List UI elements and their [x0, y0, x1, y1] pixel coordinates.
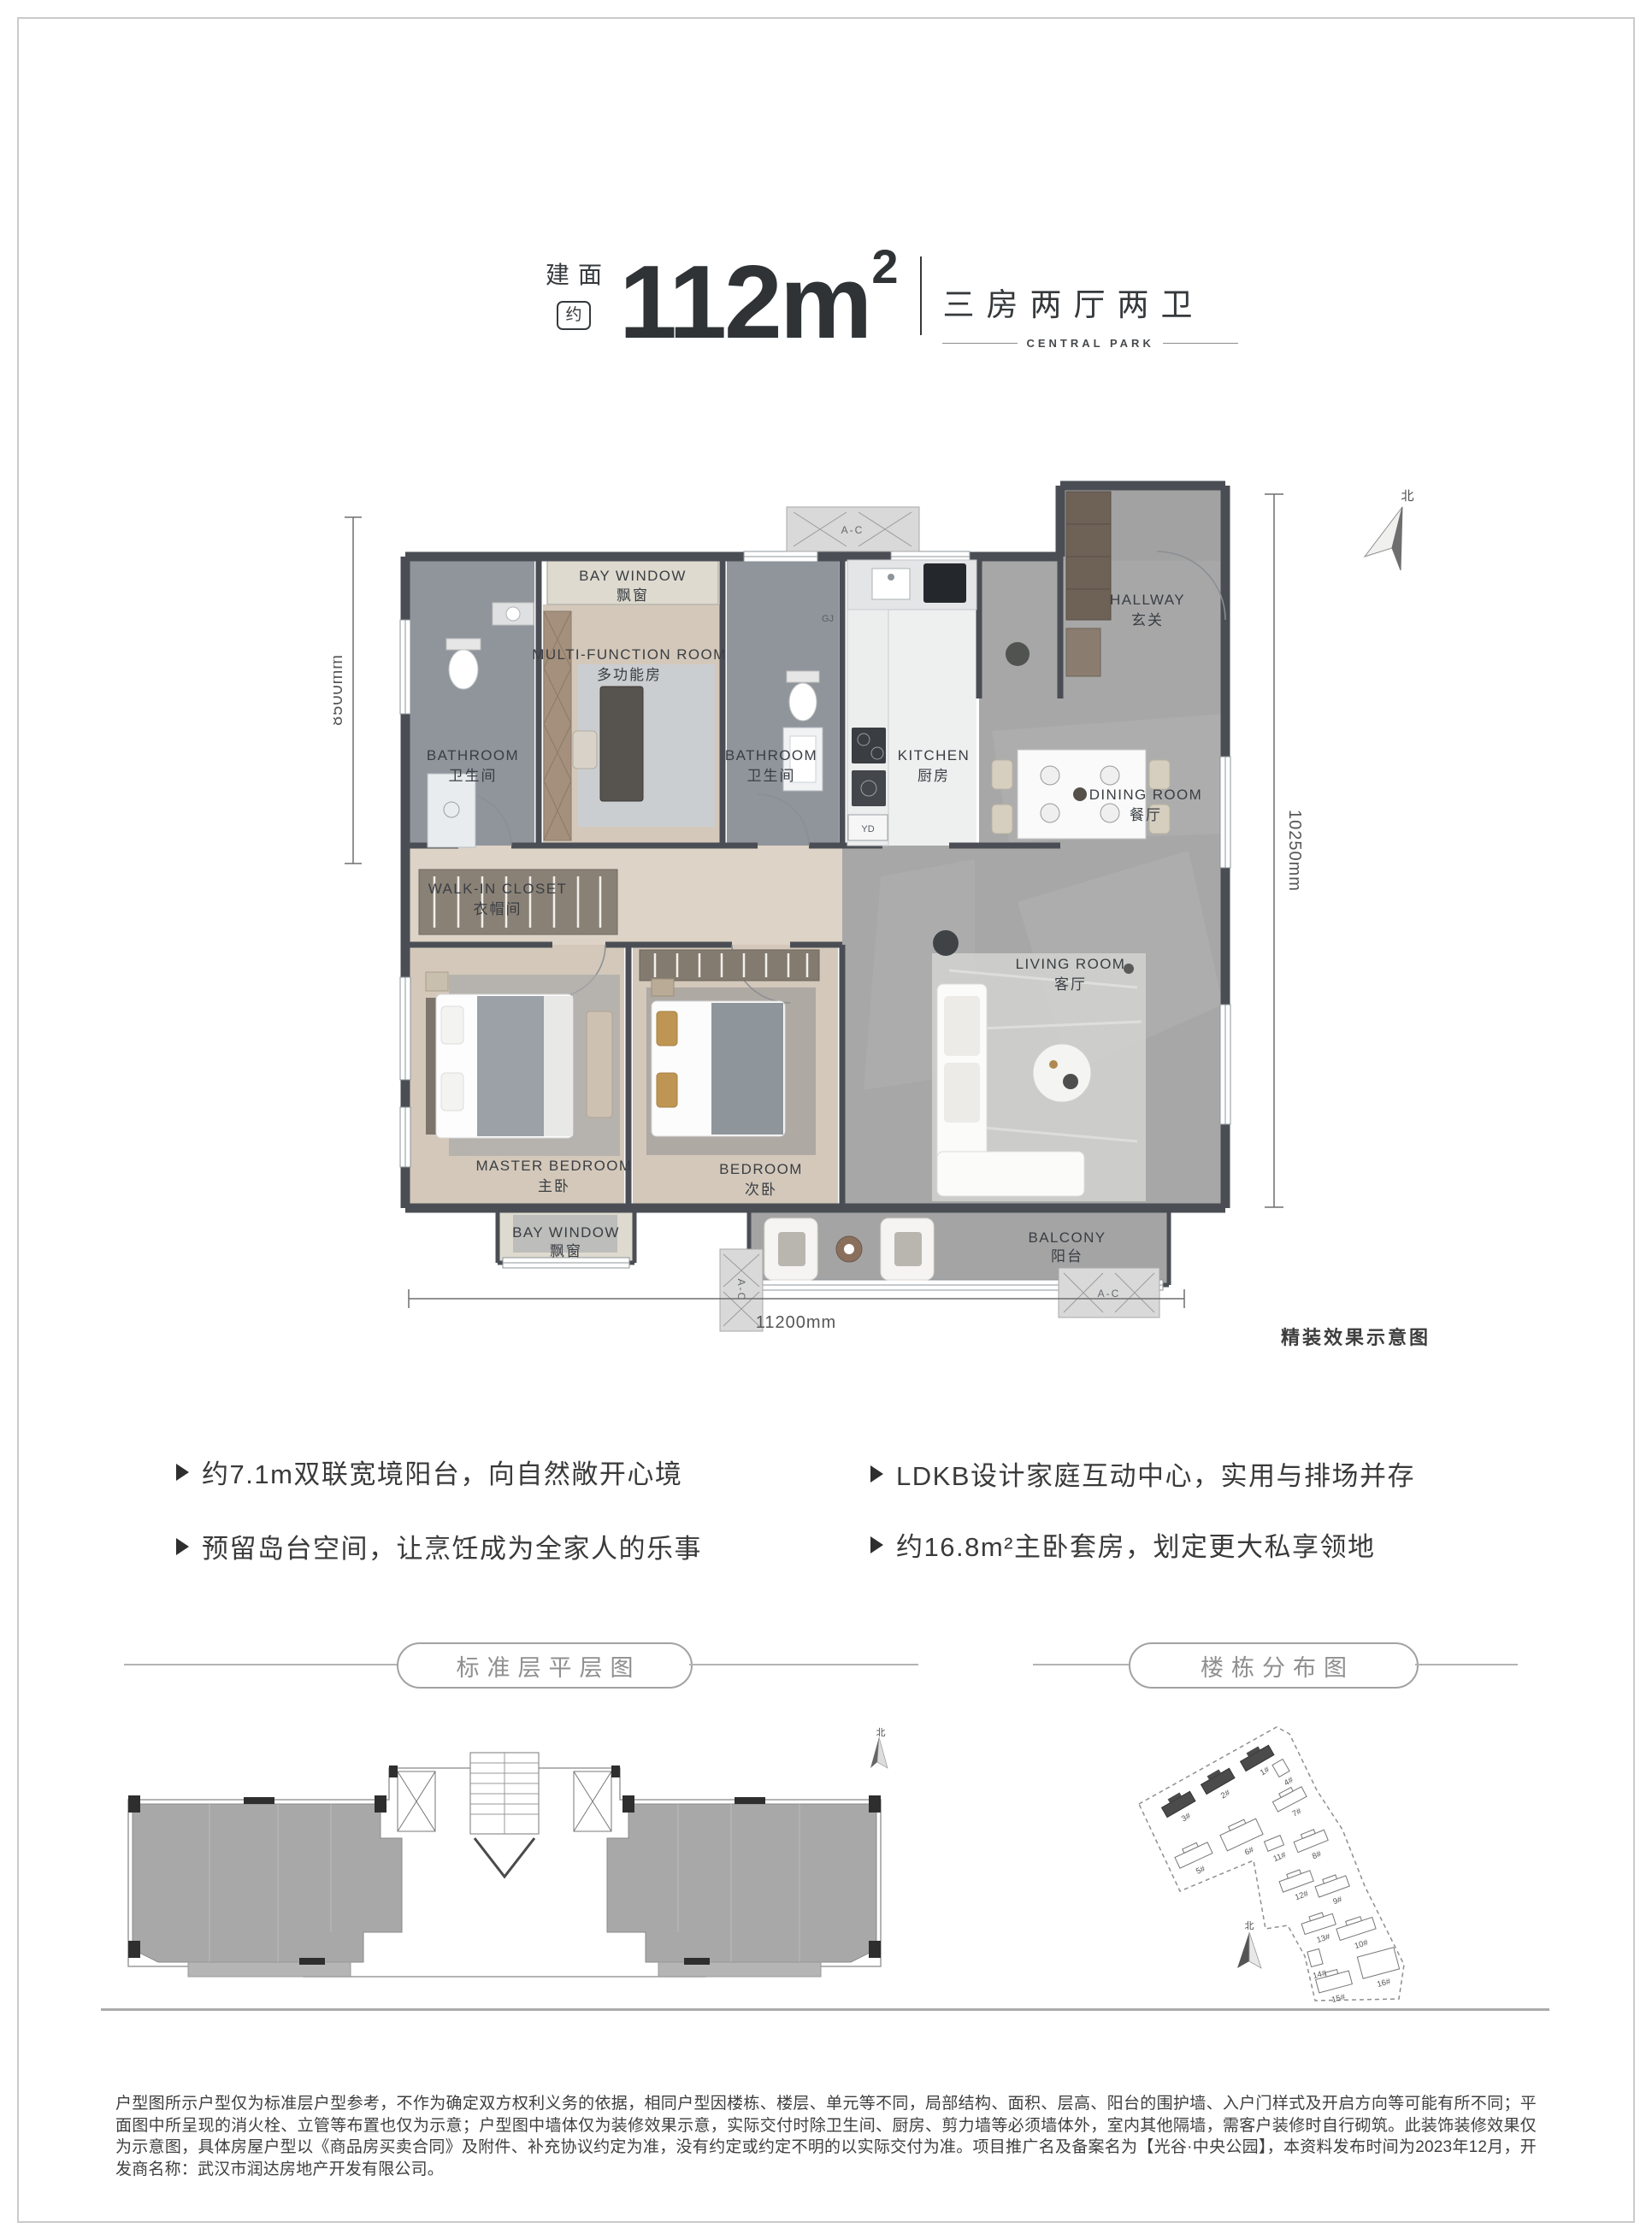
floor-plan: A-C A-C A-C YD GJ BAY WINDOW 飘窗 MULTI-FU…: [333, 475, 1437, 1338]
yd-label: YD: [861, 824, 874, 834]
brand-row: CENTRAL PARK: [942, 337, 1237, 350]
room-label-multi-zh: 多功能房: [597, 667, 662, 683]
header: 建面 约 112m 2 三房两厅两卫 CENTRAL PARK: [537, 250, 1238, 344]
building-label: 15#: [1330, 1992, 1347, 2005]
building-label: 7#: [1290, 1807, 1303, 1819]
room-label-bath1-zh: 卫生间: [449, 768, 498, 784]
building-label: 10#: [1354, 1938, 1370, 1952]
section-pill-floor-plate: 标准层平层图: [397, 1642, 693, 1689]
section-title: 标准层平层图: [449, 1649, 641, 1683]
ac-label-bottom-right: A-C: [1098, 1288, 1121, 1300]
building-label: 3#: [1180, 1811, 1193, 1824]
bullet-triangle-icon: [870, 1536, 883, 1553]
building-label: 5#: [1195, 1864, 1207, 1877]
north-label: 北: [1401, 489, 1413, 504]
room-label-hallway-zh: 玄关: [1131, 612, 1164, 628]
room-label-bay-bottom-en: BAY WINDOW: [512, 1224, 620, 1241]
room-label-closet-en: WALK-IN CLOSET: [428, 881, 568, 897]
building-label: 8#: [1311, 1849, 1324, 1861]
room-label-living-zh: 客厅: [1054, 976, 1087, 993]
room-label-dining-en: DINING ROOM: [1089, 787, 1203, 803]
section-line: [689, 1664, 918, 1665]
brand-line-left: [942, 343, 1018, 344]
brand-text: CENTRAL PARK: [1026, 337, 1153, 350]
feature-text: 约16.8m²主卧套房，划定更大私享领地: [896, 1525, 1375, 1564]
room-label-bedroom-en: BEDROOM: [719, 1161, 803, 1177]
area-value: 112m 2: [619, 250, 898, 354]
room-label-kitchen-zh: 厨房: [917, 768, 950, 784]
site-map-diagram: 3# 2# 1# 4# 7# 5# 6# 11# 8# 12# 9# 13# 1…: [1060, 1708, 1539, 2007]
dim-right: 10250mm: [1285, 810, 1304, 892]
area-prefix: 建面: [537, 256, 611, 291]
bullet-triangle-icon: [176, 1464, 189, 1481]
header-divider: [920, 256, 922, 335]
feature-right-2: 约16.8m²主卧套房，划定更大私享领地: [870, 1525, 1375, 1564]
bullet-triangle-icon: [176, 1538, 189, 1555]
room-label-kitchen-en: KITCHEN: [898, 747, 970, 763]
feature-left-2: 预留岛台空间，让烹饪成为全家人的乐事: [176, 1527, 702, 1565]
plan-caption: 精装效果示意图: [1281, 1323, 1431, 1350]
north-label: 北: [876, 1727, 886, 1738]
brand-line-right: [1163, 343, 1238, 344]
building-label: 11#: [1271, 1850, 1288, 1864]
room-label-master-zh: 主卧: [538, 1178, 570, 1194]
room-label-bay-top-zh: 飘窗: [617, 587, 649, 604]
room-label-master-en: MASTER BEDROOM: [475, 1158, 632, 1174]
room-label-bedroom-zh: 次卧: [745, 1182, 777, 1198]
building-label: 1#: [1259, 1765, 1271, 1777]
north-label: 北: [1245, 1920, 1254, 1931]
feature-text: 预留岛台空间，让烹饪成为全家人的乐事: [202, 1527, 702, 1565]
building-label: 9#: [1331, 1895, 1343, 1907]
layout-title: 三房两厅两卫: [942, 279, 1237, 325]
gj-label: GJ: [822, 614, 834, 624]
building-label: 4#: [1283, 1775, 1295, 1788]
feature-right-1: LDKB设计家庭互动中心，实用与排场并存: [870, 1454, 1415, 1493]
area-prefix-block: 建面 约: [537, 256, 611, 330]
dim-bottom: 11200mm: [756, 1313, 836, 1332]
room-label-multi-en: MULTI-FUNCTION ROOM: [532, 646, 726, 663]
section-line: [124, 1664, 397, 1665]
room-label-living-en: LIVING ROOM: [1016, 956, 1126, 972]
north-arrow-icon: 北: [870, 1727, 888, 1768]
header-right: 三房两厅两卫 CENTRAL PARK: [942, 279, 1237, 350]
section-divider: [101, 2008, 1549, 2011]
disclaimer-text: 户型图所示户型仅为标准层户型参考，不作为确定双方权利义务的依据，相同户型因楼栋、…: [115, 2093, 1537, 2180]
room-label-balcony-zh: 阳台: [1051, 1248, 1083, 1264]
building-label: 6#: [1243, 1845, 1256, 1858]
north-arrow-icon: 北: [1237, 1920, 1261, 1968]
room-label-hallway-en: HALLWAY: [1110, 592, 1185, 608]
section-title: 楼栋分布图: [1193, 1649, 1354, 1683]
approx-badge: 约: [557, 301, 591, 330]
room-label-balcony-en: BALCONY: [1028, 1229, 1106, 1246]
floor-plate-diagram: 北: [107, 1718, 902, 2001]
site-buildings: 3# 2# 1# 4# 7# 5# 6# 11# 8# 12# 9# 13# 1…: [1159, 1742, 1403, 2007]
building-label: 16#: [1376, 1977, 1392, 1989]
feature-text: 约7.1m双联宽境阳台，向自然敞开心境: [202, 1453, 682, 1491]
feature-text: LDKB设计家庭互动中心，实用与排场并存: [896, 1454, 1415, 1493]
section-line: [1415, 1664, 1518, 1665]
room-label-bay-top-en: BAY WINDOW: [579, 568, 687, 584]
dim-left: 8500mm: [333, 654, 346, 726]
room-label-bath1-en: BATHROOM: [427, 747, 519, 763]
section-pill-site-map: 楼栋分布图: [1129, 1642, 1419, 1689]
building-label: 13#: [1315, 1932, 1331, 1946]
bullet-triangle-icon: [870, 1465, 883, 1483]
area-superscript: 2: [871, 243, 898, 291]
area-number: 112m: [619, 250, 870, 354]
room-label-closet-zh: 衣帽间: [474, 901, 522, 917]
room-label-bath2-zh: 卫生间: [747, 768, 796, 784]
section-line: [1033, 1664, 1129, 1665]
building-label: 2#: [1219, 1788, 1232, 1801]
feature-left-1: 约7.1m双联宽境阳台，向自然敞开心境: [176, 1453, 682, 1491]
room-label-bath2-en: BATHROOM: [725, 747, 817, 763]
north-arrow-icon: 北: [1365, 489, 1414, 570]
room-label-dining-zh: 餐厅: [1130, 807, 1162, 823]
ac-label-top: A-C: [841, 524, 864, 536]
building-label: 12#: [1294, 1889, 1310, 1902]
room-label-bay-bottom-zh: 飘窗: [550, 1243, 582, 1259]
